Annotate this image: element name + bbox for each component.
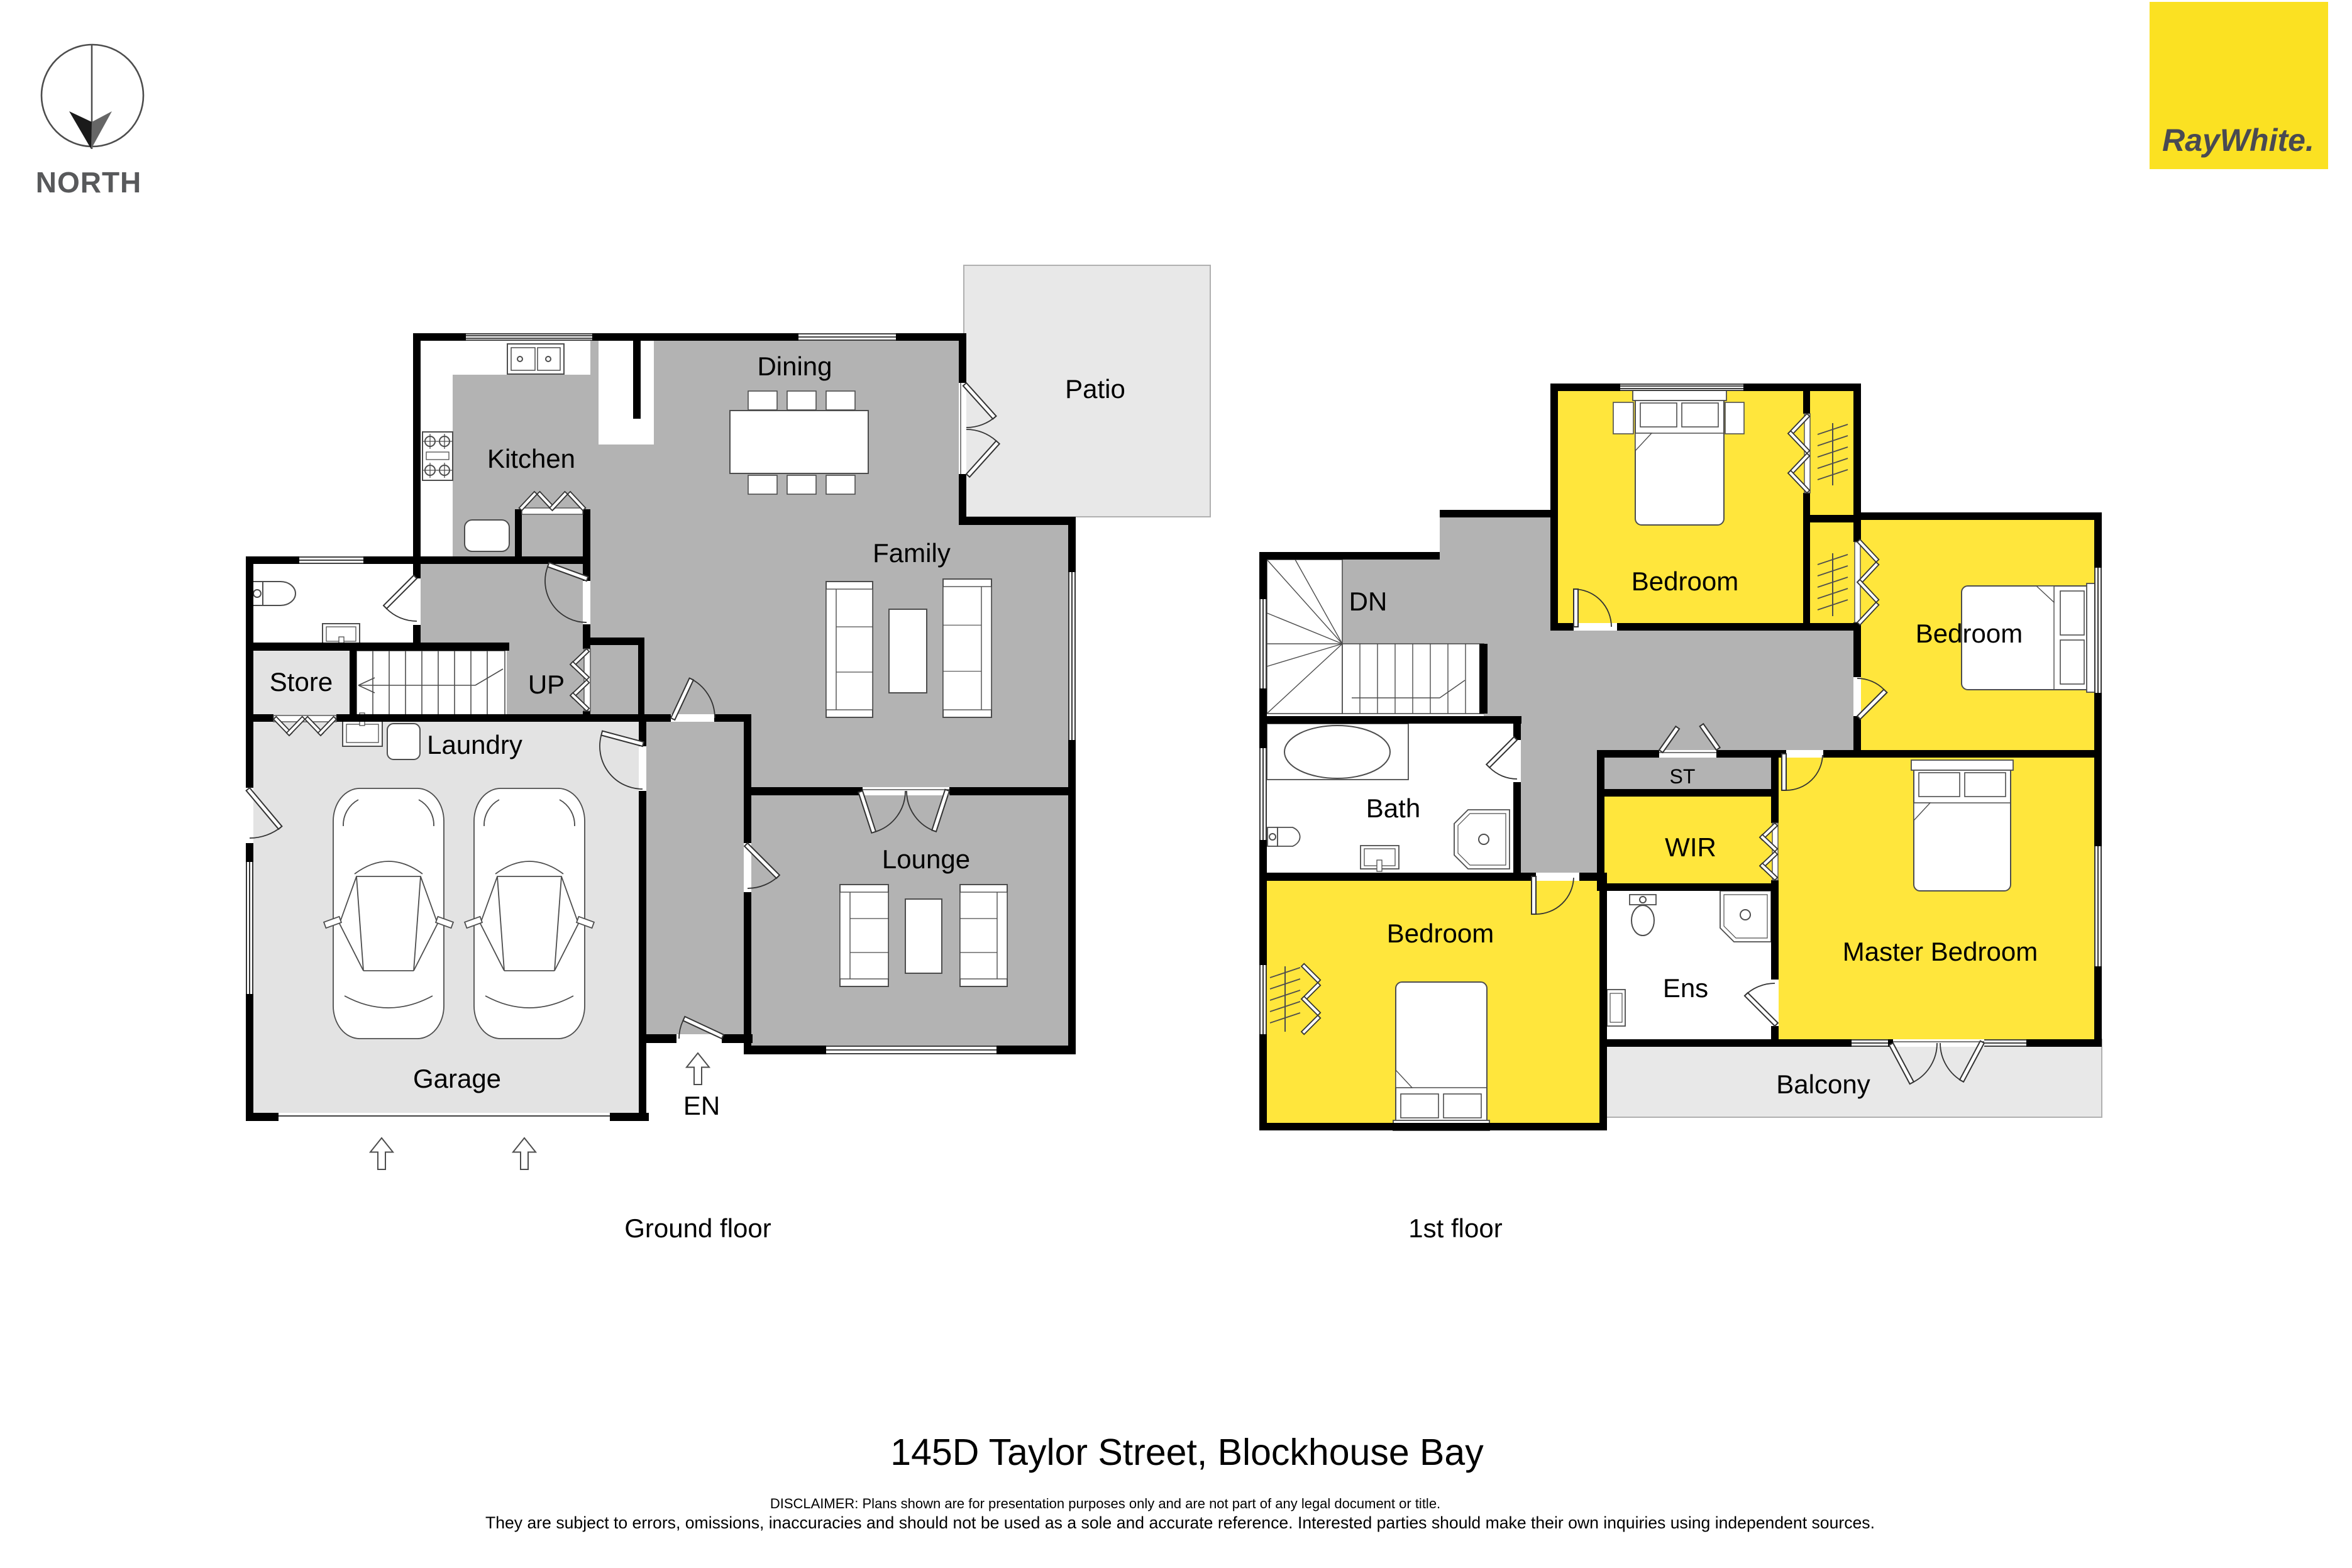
svg-text:Bedroom: Bedroom — [1916, 619, 2023, 648]
svg-text:UP: UP — [528, 670, 565, 699]
svg-text:Bath: Bath — [1366, 793, 1420, 823]
svg-text:DISCLAIMER: Plans shown are fo: DISCLAIMER: Plans shown are for presenta… — [770, 1496, 1440, 1511]
svg-text:Kitchen: Kitchen — [487, 444, 575, 473]
svg-text:1st floor: 1st floor — [1408, 1213, 1502, 1243]
svg-text:Lounge: Lounge — [882, 844, 970, 874]
svg-text:Bedroom: Bedroom — [1631, 566, 1738, 596]
svg-text:WIR: WIR — [1665, 832, 1716, 862]
svg-text:Ens: Ens — [1663, 973, 1708, 1003]
svg-text:EN: EN — [683, 1091, 720, 1120]
svg-text:Family: Family — [873, 538, 951, 568]
svg-text:They are subject to errors, om: They are subject to errors, omissions, i… — [485, 1513, 1875, 1532]
svg-text:NORTH: NORTH — [36, 166, 142, 199]
svg-text:DN: DN — [1349, 587, 1388, 616]
svg-text:145D Taylor Street, Blockhouse: 145D Taylor Street, Blockhouse Bay — [890, 1432, 1484, 1473]
svg-text:Laundry: Laundry — [427, 730, 522, 759]
svg-text:Bedroom: Bedroom — [1387, 919, 1494, 948]
svg-text:RayWhite.: RayWhite. — [2162, 123, 2314, 158]
svg-text:Garage: Garage — [413, 1064, 501, 1093]
svg-text:Patio: Patio — [1065, 374, 1125, 404]
svg-text:Ground floor: Ground floor — [624, 1213, 771, 1243]
svg-text:Master Bedroom: Master Bedroom — [1843, 937, 2038, 966]
svg-text:Dining: Dining — [757, 351, 832, 381]
svg-text:ST: ST — [1670, 765, 1696, 788]
svg-text:Balcony: Balcony — [1776, 1069, 1870, 1099]
svg-text:Store: Store — [270, 667, 333, 697]
